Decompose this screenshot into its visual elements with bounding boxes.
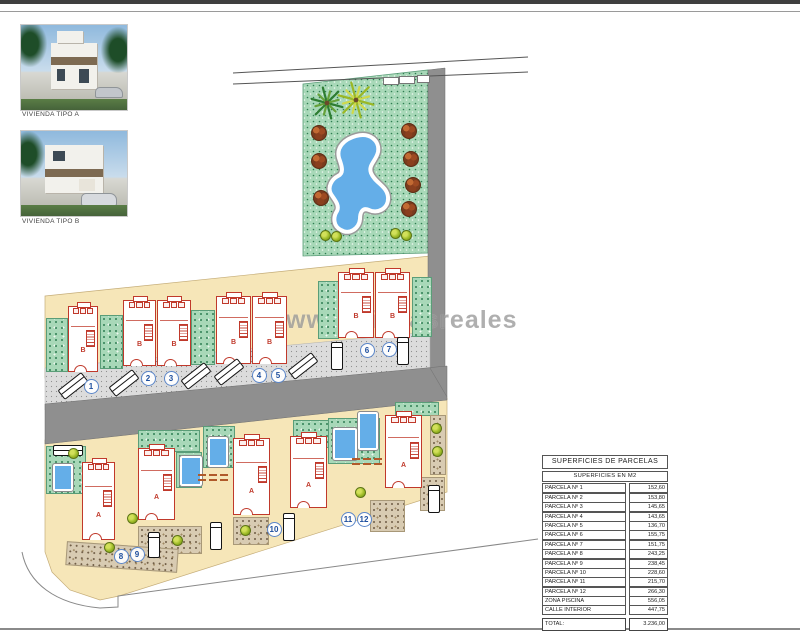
house-partition: [341, 292, 371, 293]
house-roof-detail: [129, 302, 151, 308]
house-parcel-1: B: [68, 306, 98, 372]
bush-icon: [401, 230, 412, 241]
shrub-icon: [311, 153, 327, 169]
house-parcel-5: B: [252, 296, 287, 364]
private-pool: [53, 464, 73, 491]
car-icon: [283, 513, 295, 541]
house-type-label: B: [376, 313, 409, 320]
house-door-arc: [297, 501, 310, 508]
garden-patch: [46, 318, 68, 372]
house-parcel-8: A: [82, 462, 115, 540]
house-door-arc: [259, 357, 272, 364]
house-type-label: B: [253, 339, 286, 346]
boundary-dashes: [198, 474, 228, 482]
bush-icon: [431, 423, 442, 434]
house-parcel-9: A: [138, 448, 175, 520]
private-pool: [333, 428, 357, 460]
bush-icon: [320, 230, 331, 241]
house-roof-detail: [163, 302, 185, 308]
parcel-number-7: 7: [382, 342, 397, 357]
house-parcel-2: B: [123, 300, 156, 366]
house-stairs: [315, 462, 324, 479]
house-stairs: [179, 324, 188, 341]
car-icon: [331, 342, 343, 370]
house-type-label: A: [83, 512, 114, 519]
house-door-arc: [240, 508, 253, 515]
table-subtitle: SUPERFICIES EN M2: [542, 471, 668, 482]
house-partition: [160, 320, 188, 321]
private-pool: [358, 412, 378, 450]
bush-icon: [432, 446, 443, 457]
bush-icon: [104, 542, 115, 553]
parcel-number-8: 8: [114, 549, 129, 564]
house-stairs: [103, 490, 112, 507]
car-icon: [210, 522, 222, 550]
house-roof-detail: [222, 298, 245, 304]
house-stairs: [144, 324, 153, 341]
house-type-label: A: [234, 488, 269, 495]
house-door-arc: [145, 513, 158, 520]
parcel-number-3: 3: [164, 371, 179, 386]
entry-step: [383, 77, 399, 85]
site-plan: www.civitasreales BBBBBBBAAAAA1234567891…: [0, 0, 800, 640]
house-partition: [126, 320, 153, 321]
house-parcel-3: B: [157, 300, 191, 366]
house-type-label: A: [291, 482, 326, 489]
parcel-number-2: 2: [141, 371, 156, 386]
shrub-icon: [403, 151, 419, 167]
parcel-number-4: 4: [252, 368, 267, 383]
shrub-icon: [401, 123, 417, 139]
house-roof-detail: [296, 438, 321, 444]
house-partition: [255, 317, 284, 318]
palm-trunk: [354, 98, 359, 103]
house-roof-detail: [344, 274, 368, 280]
car-icon: [428, 485, 440, 513]
house-type-label: B: [124, 341, 155, 348]
private-pool: [208, 437, 228, 467]
house-stairs: [275, 321, 284, 338]
house-stairs: [239, 321, 248, 338]
house-stairs: [410, 442, 419, 459]
parcel-number-9: 9: [130, 547, 145, 562]
garden-patch: [191, 310, 215, 365]
bush-icon: [172, 535, 183, 546]
parcel-number-12: 12: [357, 512, 372, 527]
house-door-arc: [89, 533, 102, 540]
bush-icon: [127, 513, 138, 524]
driveway: [233, 517, 269, 545]
parcel-number-1: 1: [84, 379, 99, 394]
house-roof-detail: [239, 440, 264, 446]
house-parcel-7: B: [375, 272, 410, 338]
entry-step: [399, 76, 415, 84]
table-total-row: TOTAL: 3.236,00: [542, 618, 668, 629]
parcel-number-10: 10: [267, 522, 282, 537]
table-row: CALLE INTERIOR447,75: [542, 606, 668, 615]
entry-step: [417, 75, 430, 83]
car-icon: [148, 532, 160, 558]
house-type-label: A: [386, 462, 421, 469]
shrub-icon: [405, 177, 421, 193]
bush-icon: [68, 448, 79, 459]
total-value: 3.236,00: [629, 618, 668, 631]
house-door-arc: [382, 331, 395, 338]
house-roof-detail: [73, 308, 93, 314]
house-partition: [236, 462, 267, 463]
house-partition: [388, 437, 419, 438]
house-partition: [85, 486, 112, 487]
palm-trunk: [325, 101, 330, 106]
boundary-dashes: [352, 458, 382, 466]
shrub-icon: [313, 190, 329, 206]
house-door-arc: [345, 331, 358, 338]
garden-patch: [318, 281, 339, 339]
bush-icon: [331, 231, 342, 242]
house-parcel-10: A: [233, 438, 270, 515]
total-label: TOTAL:: [542, 618, 626, 631]
house-roof-detail: [381, 274, 404, 280]
garden-patch: [100, 315, 123, 369]
surface-table: SUPERFICIES DE PARCELAS SUPERFICIES EN M…: [542, 455, 668, 629]
car-icon: [397, 337, 409, 365]
house-stairs: [398, 296, 407, 313]
house-partition: [219, 317, 248, 318]
house-roof-detail: [144, 450, 169, 456]
side-road: [428, 68, 445, 400]
house-parcel-11: A: [290, 436, 327, 508]
driveway: [370, 500, 405, 532]
house-parcel-4: B: [216, 296, 251, 364]
parcel-number-6: 6: [360, 343, 375, 358]
house-door-arc: [164, 359, 177, 366]
house-type-label: B: [339, 313, 373, 320]
parcel-surface-value: 447,75: [629, 605, 668, 615]
house-door-arc: [74, 365, 87, 372]
parcel-number-5: 5: [271, 368, 286, 383]
shrub-icon: [311, 125, 327, 141]
house-type-label: B: [69, 347, 97, 354]
house-roof-detail: [391, 417, 416, 423]
garden-patch: [412, 277, 432, 337]
table-title: SUPERFICIES DE PARCELAS: [542, 455, 668, 469]
house-stairs: [362, 296, 371, 313]
house-partition: [141, 470, 172, 471]
bush-icon: [390, 228, 401, 239]
house-partition: [293, 458, 324, 459]
house-roof-detail: [88, 464, 110, 470]
house-door-arc: [392, 481, 405, 488]
house-stairs: [258, 466, 267, 483]
bush-icon: [240, 525, 251, 536]
house-partition: [378, 292, 407, 293]
house-stairs: [86, 330, 95, 347]
bush-icon: [355, 487, 366, 498]
house-stairs: [163, 474, 172, 491]
house-type-label: B: [158, 341, 190, 348]
parcel-label: CALLE INTERIOR: [542, 605, 626, 615]
top-road-edge: [233, 57, 528, 73]
house-type-label: B: [217, 339, 250, 346]
house-roof-detail: [258, 298, 281, 304]
shrub-icon: [401, 201, 417, 217]
house-partition: [71, 326, 95, 327]
house-parcel-6: B: [338, 272, 374, 338]
house-parcel-12: A: [385, 415, 422, 488]
table-rows: PARCELA Nº 1152,60PARCELA Nº 2153,80PARC…: [542, 484, 668, 615]
house-door-arc: [130, 359, 143, 366]
parcel-number-11: 11: [341, 512, 356, 527]
house-type-label: A: [139, 494, 174, 501]
plan-sheet: VIVIENDA TIPO A VIVIENDA TIPO B: [0, 0, 800, 640]
